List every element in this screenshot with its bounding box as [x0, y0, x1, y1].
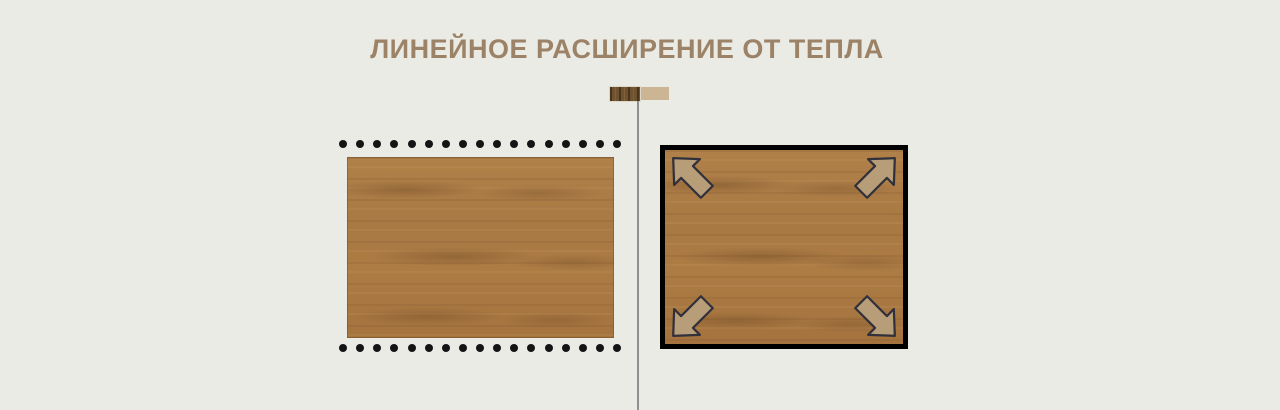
dotted-row-top	[339, 140, 621, 148]
dot	[527, 344, 535, 352]
dot	[425, 344, 433, 352]
dot	[562, 140, 570, 148]
dot	[408, 140, 416, 148]
dot	[442, 140, 450, 148]
dot	[510, 140, 518, 148]
arrow-up-left-icon	[650, 135, 729, 214]
arrow-down-right-icon	[838, 279, 917, 358]
arrow-up-right-icon	[838, 135, 917, 214]
dot	[442, 344, 450, 352]
dotted-row-bottom	[339, 344, 621, 352]
dot	[339, 140, 347, 148]
dot	[476, 344, 484, 352]
dot	[596, 140, 604, 148]
dot	[476, 140, 484, 148]
dot	[390, 140, 398, 148]
dot	[527, 140, 535, 148]
light-wood-swatch-icon	[641, 87, 669, 100]
dark-wood-swatch-icon	[609, 86, 641, 102]
dot	[493, 140, 501, 148]
dot	[356, 344, 364, 352]
dot	[545, 344, 553, 352]
dot	[459, 344, 467, 352]
wood-board-framed	[660, 145, 908, 349]
wood-legend	[609, 86, 669, 102]
dot	[562, 344, 570, 352]
dot	[339, 344, 347, 352]
dot	[356, 140, 364, 148]
dot	[613, 344, 621, 352]
dot	[579, 140, 587, 148]
dot	[613, 140, 621, 148]
infographic-linear-heat-expansion: ЛИНЕЙНОЕ РАСШИРЕНИЕ ОТ ТЕПЛА	[0, 0, 1280, 410]
page-title: ЛИНЕЙНОЕ РАСШИРЕНИЕ ОТ ТЕПЛА	[0, 34, 1267, 65]
dot	[408, 344, 416, 352]
dot	[373, 344, 381, 352]
dot	[510, 344, 518, 352]
vertical-divider	[637, 101, 639, 410]
dot	[493, 344, 501, 352]
dot	[390, 344, 398, 352]
dot	[425, 140, 433, 148]
dot	[596, 344, 604, 352]
dot	[545, 140, 553, 148]
wood-board-before	[347, 157, 614, 338]
arrow-down-left-icon	[650, 279, 729, 358]
dot	[459, 140, 467, 148]
dot	[579, 344, 587, 352]
dot	[373, 140, 381, 148]
